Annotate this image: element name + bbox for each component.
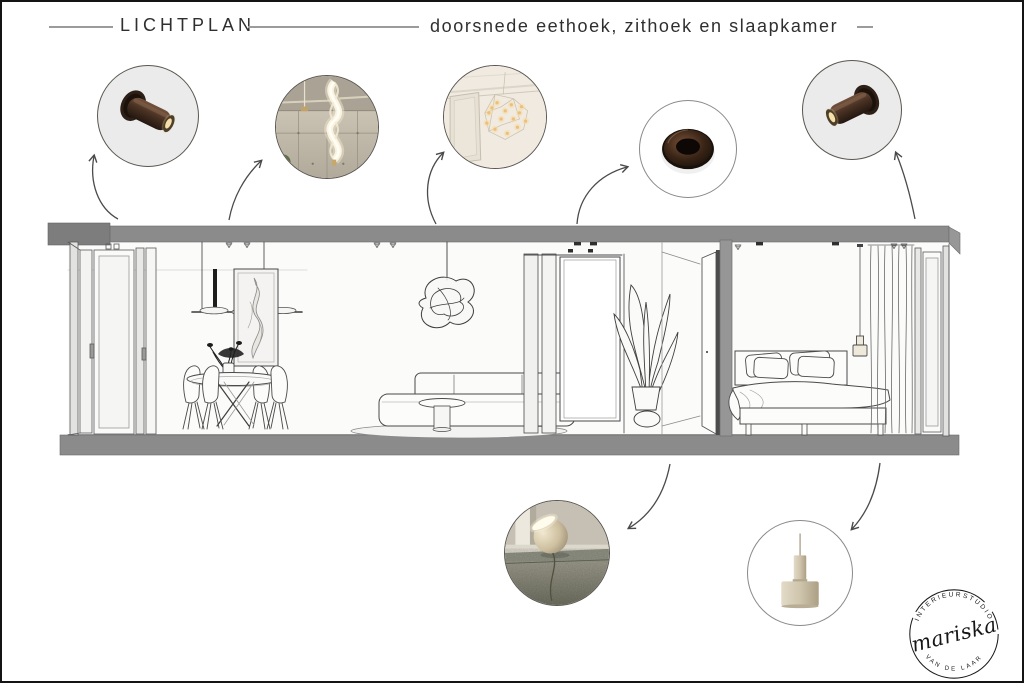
fixture-circle-recessed-spot xyxy=(639,100,737,198)
logo-arc-bottom: VAN DE LAAR xyxy=(924,653,985,672)
ceiling-slab xyxy=(102,226,949,242)
fixture-circle-wire-chandelier xyxy=(443,65,547,169)
right-window-wall xyxy=(915,244,949,436)
lichtplan-poster: LICHTPLAN doorsnede eethoek, zithoek en … xyxy=(0,0,1024,683)
arrow-wall-spot-right xyxy=(896,153,915,219)
fixture-circle-bedside-pendant xyxy=(747,520,853,626)
fixture-circle-wall-spot-right xyxy=(802,60,902,160)
arrow-bedside-pendant xyxy=(852,463,880,529)
recessed-spot-icon xyxy=(640,101,736,197)
svg-text:VAN DE LAAR: VAN DE LAAR xyxy=(924,653,985,672)
arrow-twisted-pendant xyxy=(229,161,261,220)
arrow-recessed-spot xyxy=(577,167,627,224)
fixture-circle-ball-lamp xyxy=(504,500,610,606)
left-window-wall xyxy=(68,242,156,435)
twisted-pendant-photo xyxy=(276,76,378,178)
wall-spot-icon xyxy=(803,61,901,159)
arrow-ball-lamp xyxy=(629,464,670,528)
floor-slab xyxy=(60,435,959,455)
logo-name: mariska xyxy=(909,612,999,656)
fixture-circle-wall-spot-left xyxy=(97,65,199,167)
arrow-wall-spot-left xyxy=(93,156,118,219)
bedside-pendant-icon xyxy=(748,521,852,625)
studio-logo: INTERIEURSTUDIO VAN DE LAAR mariska xyxy=(907,587,1001,681)
fixture-circle-twisted-pendant xyxy=(275,75,379,179)
ball-lamp-photo xyxy=(505,501,609,605)
building-section xyxy=(48,223,960,455)
wall-spot-icon xyxy=(98,66,198,166)
arrow-wire-chandelier xyxy=(428,153,443,224)
wire-chandelier-photo xyxy=(444,66,546,168)
